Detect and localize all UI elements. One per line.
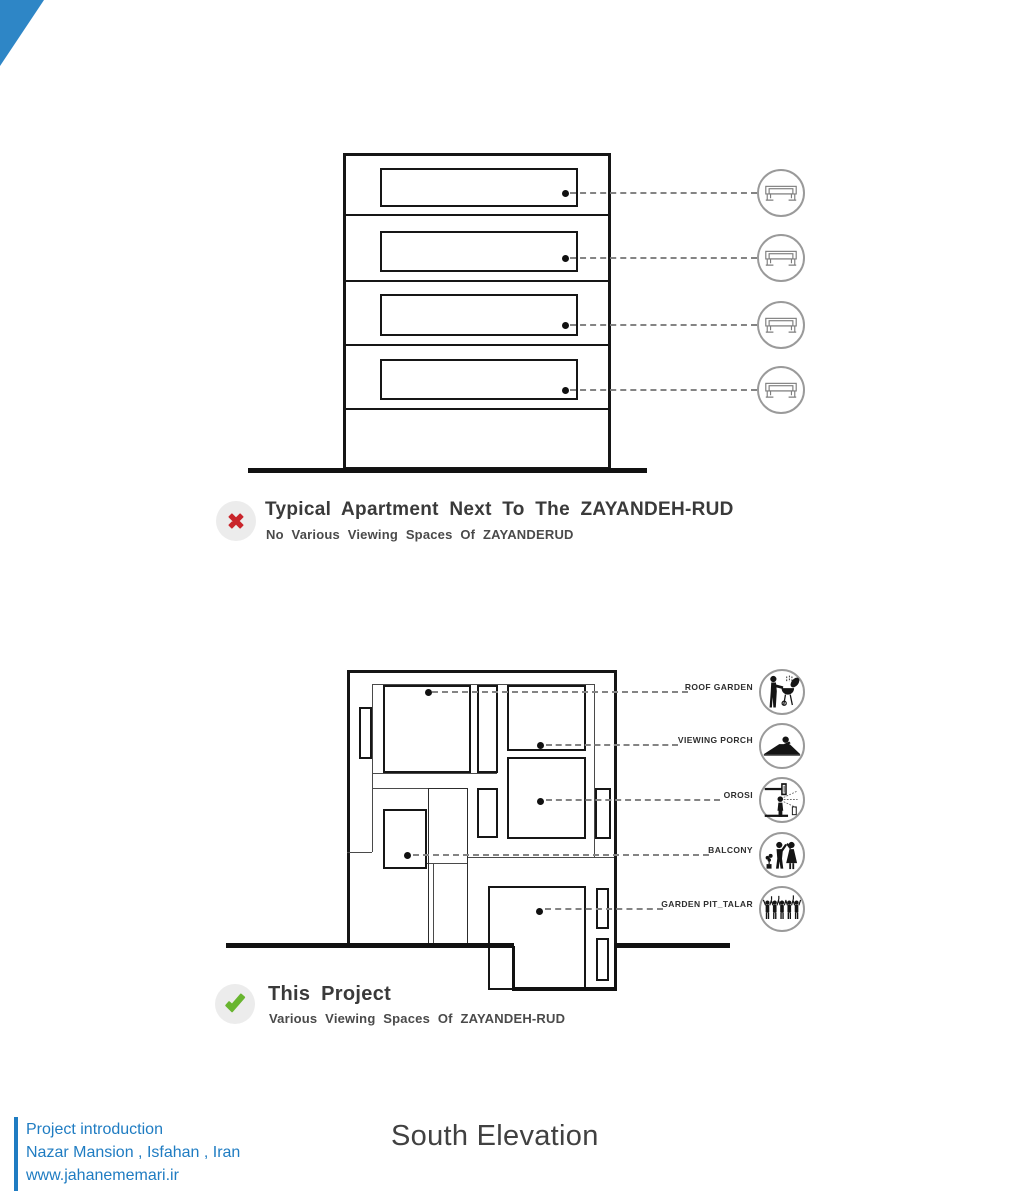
garden-pit-outline <box>512 946 617 991</box>
side-window <box>359 707 372 759</box>
frame-line <box>372 773 497 774</box>
leader-line <box>546 744 678 746</box>
frame-line <box>468 857 614 858</box>
window <box>380 359 578 400</box>
legend-circle <box>757 366 805 414</box>
side-window <box>595 788 611 839</box>
viewing-porch-room <box>507 685 586 751</box>
anchor-dot <box>404 852 411 859</box>
legend-label-viewing-porch: VIEWING PORCH <box>678 735 753 745</box>
credit-line-location: Nazar Mansion , Isfahan , Iran <box>26 1141 240 1164</box>
ground-line <box>248 468 647 473</box>
top-diagram-title: Typical Apartment Next To The ZAYANDEH-R… <box>265 499 734 521</box>
legend-circle <box>757 301 805 349</box>
legend-label-orosi: OROSI <box>724 790 753 800</box>
legend-label-balcony: BALCONY <box>708 845 753 855</box>
anchor-dot <box>537 742 544 749</box>
credit-line-website: www.jahanememari.ir <box>26 1164 240 1187</box>
check-mark-icon <box>221 990 249 1018</box>
floor-line <box>346 344 608 346</box>
bench-sofa-icon <box>762 180 800 206</box>
bench-sofa-icon <box>762 245 800 271</box>
page: Typical Apartment Next To The ZAYANDEH-R… <box>0 0 1026 1200</box>
floor-line <box>346 280 608 282</box>
leader-line <box>570 257 757 259</box>
leader-line <box>570 192 757 194</box>
approved-badge <box>215 984 255 1024</box>
drawing-title: South Elevation <box>391 1120 599 1153</box>
corner-ribbon <box>0 0 44 66</box>
anchor-dot <box>537 798 544 805</box>
ground-line <box>614 943 730 948</box>
legend-circle <box>759 777 805 823</box>
legend-label-garden-pit: GARDEN PIT_TALAR <box>661 899 753 909</box>
reclining-person-icon <box>762 733 802 759</box>
anchor-dot <box>562 255 569 262</box>
frame-line <box>347 852 372 853</box>
frame-line <box>372 684 373 852</box>
crowd-celebration-icon <box>762 894 802 924</box>
family-waving-icon <box>762 839 802 871</box>
credit-line-project: Project introduction <box>26 1118 240 1141</box>
anchor-dot <box>536 908 543 915</box>
legend-circle <box>759 886 805 932</box>
window <box>380 168 578 207</box>
leader-line <box>413 854 709 856</box>
anchor-dot <box>425 689 432 696</box>
window <box>380 294 578 336</box>
bench-sofa-icon <box>762 312 800 338</box>
leader-line <box>545 908 663 910</box>
bottom-diagram-subtitle: Various Viewing Spaces Of ZAYANDEH-RUD <box>269 1011 565 1026</box>
person-at-window-icon <box>763 781 801 819</box>
bench-sofa-icon <box>762 377 800 403</box>
top-diagram-subtitle: No Various Viewing Spaces Of ZAYANDERUD <box>266 527 574 542</box>
credit-accent-bar <box>14 1117 18 1191</box>
stair-strip <box>477 685 498 773</box>
x-mark-icon <box>223 508 249 534</box>
stair-strip <box>477 788 498 838</box>
leader-line <box>432 691 688 693</box>
frame-line <box>372 788 428 789</box>
anchor-dot <box>562 190 569 197</box>
legend-label-roof-garden: ROOF GARDEN <box>685 682 753 692</box>
leader-line <box>546 799 720 801</box>
balcony-room <box>383 809 427 869</box>
floor-line <box>346 214 608 216</box>
bottom-diagram-title: This Project <box>268 983 391 1006</box>
legend-circle <box>757 169 805 217</box>
legend-circle <box>757 234 805 282</box>
rejected-badge <box>216 501 256 541</box>
orosi-room <box>507 757 586 839</box>
legend-circle <box>759 832 805 878</box>
leader-line <box>570 324 757 326</box>
credit-block: Project introduction Nazar Mansion , Isf… <box>26 1118 240 1187</box>
legend-circle <box>759 723 805 769</box>
window <box>380 231 578 272</box>
roof-garden-room <box>383 685 471 773</box>
corridor <box>428 788 468 944</box>
ground-line <box>226 943 514 948</box>
leader-line <box>570 389 757 391</box>
floor-line <box>346 408 608 410</box>
anchor-dot <box>562 387 569 394</box>
legend-circle <box>759 669 805 715</box>
barbecue-person-icon <box>763 673 801 711</box>
anchor-dot <box>562 322 569 329</box>
